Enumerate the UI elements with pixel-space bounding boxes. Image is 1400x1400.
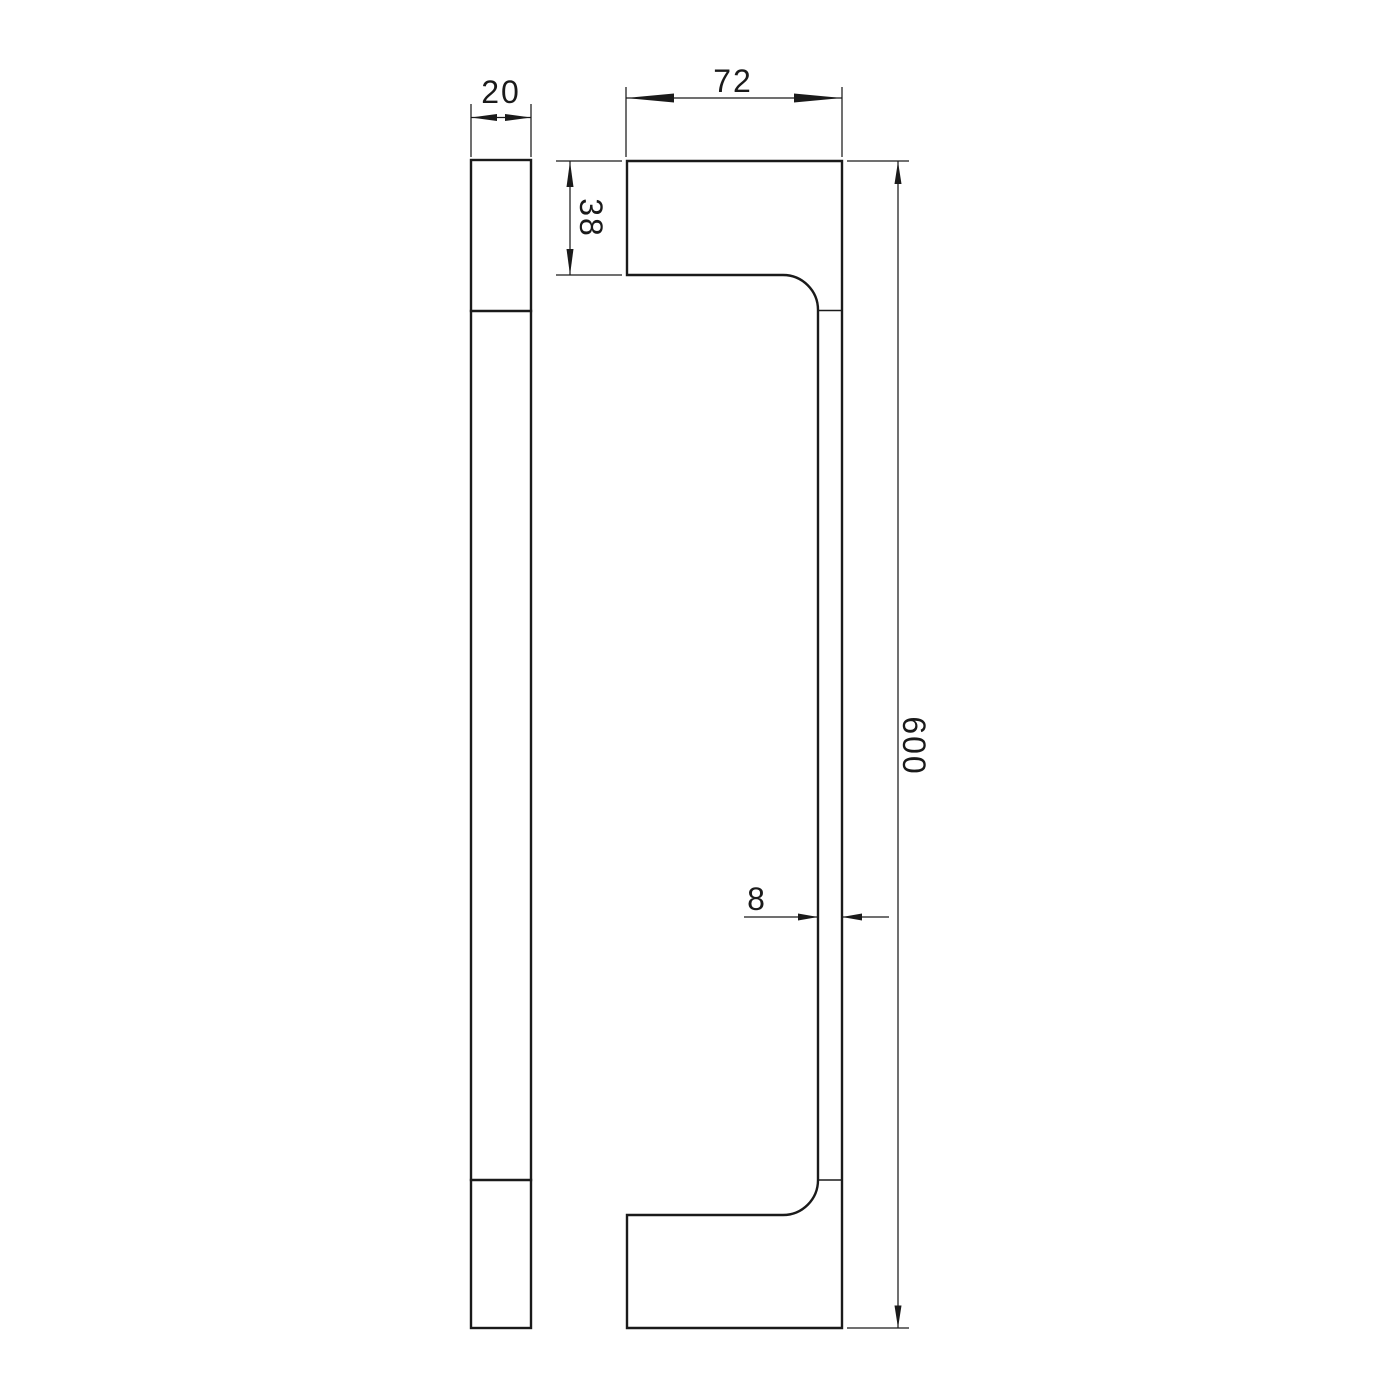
front-view [627, 161, 842, 1328]
side-view-outline [471, 160, 531, 1328]
dim-arrow-left-icon [842, 914, 862, 921]
dim-arrow-right-icon [798, 914, 818, 921]
dim-arrow-down-icon [895, 1306, 902, 1329]
dim-arrow-right-icon [794, 94, 842, 103]
dim-8-label: 8 [747, 881, 767, 917]
dim-arrow-left-icon [626, 94, 674, 103]
pull-handle-drawing: 20 72 38 600 [0, 0, 1400, 1400]
dim-arrow-left-icon [471, 114, 497, 121]
dimension-72: 72 [626, 63, 842, 157]
dimension-20: 20 [471, 74, 531, 157]
dimension-38: 38 [556, 161, 622, 275]
dim-72-label: 72 [713, 63, 753, 99]
dim-arrow-right-icon [505, 114, 531, 121]
dimension-8: 8 [744, 881, 889, 921]
side-view [471, 160, 531, 1328]
dim-arrow-down-icon [567, 249, 574, 275]
dim-arrow-up-icon [567, 162, 574, 188]
dim-20-label: 20 [481, 74, 521, 110]
technical-drawing-canvas: 20 72 38 600 [0, 0, 1400, 1400]
dim-600-label: 600 [896, 716, 932, 775]
dim-38-label: 38 [573, 198, 609, 238]
dim-20-extension-lines [471, 104, 531, 157]
front-view-outline [627, 161, 842, 1328]
dimension-600: 600 [847, 161, 932, 1328]
dim-arrow-up-icon [895, 162, 902, 185]
